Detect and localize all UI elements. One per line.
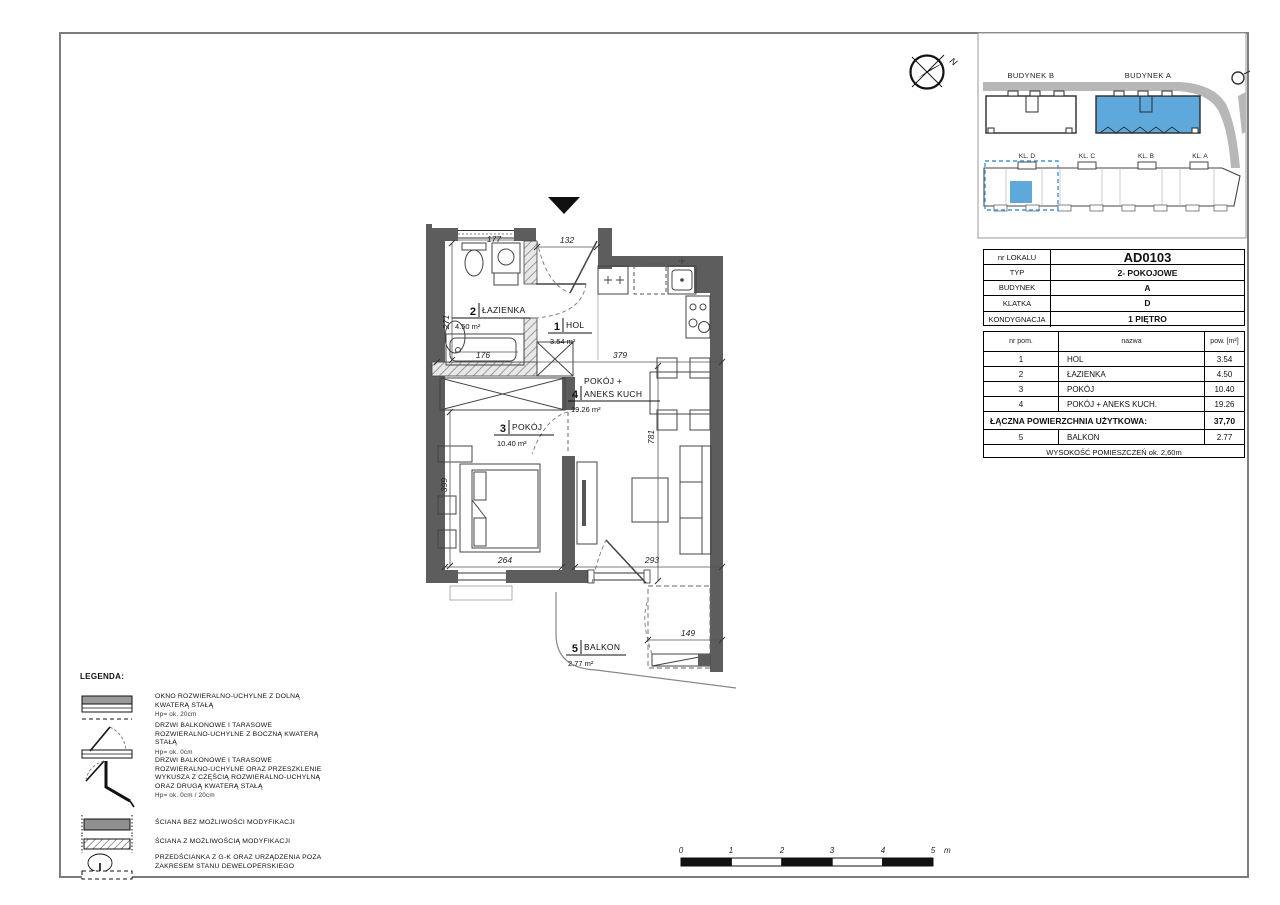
legend-line: ROZWIERALNO-UCHYLNE Z BOCZNĄ KWATERĄ: [155, 731, 319, 740]
bedroom-door: [532, 412, 568, 454]
legend-note: Hp= ok. 0cm / 20cm: [155, 792, 321, 801]
unit-building: A: [1051, 281, 1244, 295]
room-area: 19.26 m²: [571, 405, 601, 414]
unit-staircase: D: [1051, 296, 1244, 310]
table-row: TYP 2- POKOJOWE: [984, 265, 1244, 280]
scale-tick-5: 5: [931, 846, 936, 855]
scale-bar: 0 1 2 3 4 5 m: [679, 846, 951, 866]
room-area: 10.40 m²: [497, 439, 527, 448]
exterior-walls: [426, 224, 723, 672]
floor-plan-drawing: 132 177 271 176 379 781 399 264 293 149 …: [426, 197, 736, 688]
compass-north-label: N: [948, 56, 960, 68]
table-footer-row: WYSOKOŚĆ POMIESZCZEŃ ok. 2,60m: [984, 445, 1244, 459]
room-area: 3.54: [1205, 352, 1244, 366]
room-label-bathroom: 2 ŁAZIENKA 4.50 m²: [452, 303, 530, 331]
room-number: 2: [470, 306, 476, 318]
room-area: 2.77: [1205, 430, 1244, 444]
legend-line: ORAZ DRUGĄ KWATERĄ STAŁĄ: [155, 783, 321, 792]
room-name: POKÓJ: [1059, 382, 1205, 396]
building-a-highlighted: [1096, 91, 1200, 133]
table-row: 2 ŁAZIENKA 4.50: [984, 367, 1244, 382]
table-header-row: nr pom. nazwa pow. [m²]: [984, 332, 1244, 352]
legend-line: WYKUSZA Z CZĘŚCIĄ ROZWIERALNO-UCHYLNĄ: [155, 774, 321, 783]
stair-label-kl-b: KL. B: [1138, 153, 1154, 160]
room-area: 3.54 m²: [550, 337, 576, 346]
room-number: 3: [500, 423, 506, 435]
room-name: HOL: [566, 320, 584, 330]
site-plan: BUDYNEK B BUDYNEK A KL. D KL. C KL. B KL…: [978, 33, 1250, 238]
interior-walls: [432, 241, 575, 582]
dim-bath-depth: 271: [441, 315, 451, 330]
room-label-bedroom: 3 POKÓJ 10.40 m²: [494, 420, 554, 448]
total-label: ŁĄCZNA POWIERZCHNIA UŻYTKOWA:: [984, 412, 1205, 429]
room-nr: 4: [984, 397, 1059, 411]
scale-tick-1: 1: [729, 846, 733, 855]
balcony-row: 5 BALKON 2.77: [984, 430, 1244, 445]
room-nr: 3: [984, 382, 1059, 396]
room-name: HOL: [1059, 352, 1205, 366]
balcony-door: [592, 540, 646, 583]
room-area: 19.26: [1205, 397, 1244, 411]
scale-tick-3: 3: [830, 846, 835, 855]
room-name: POKÓJ: [512, 422, 542, 432]
unit-number: AD0103: [1051, 250, 1244, 264]
scale-unit: m: [944, 846, 951, 855]
table-row: BUDYNEK A: [984, 281, 1244, 296]
room-number: 1: [554, 321, 560, 333]
table-row: 1 HOL 3.54: [984, 352, 1244, 367]
room-name-line1: POKÓJ +: [584, 376, 622, 386]
room-nr: 1: [984, 352, 1059, 366]
floor-plan-sheet: 132 177 271 176 379 781 399 264 293 149 …: [0, 0, 1280, 905]
room-name: POKÓJ + ANEKS KUCH.: [1059, 397, 1205, 411]
bed: [460, 464, 540, 552]
legend-line: ZAKRESEM STANU DEWELOPERSKIEGO: [155, 863, 321, 872]
table-row: 3 POKÓJ 10.40: [984, 382, 1244, 397]
info-label: BUDYNEK: [984, 281, 1051, 295]
toilet: [462, 243, 486, 276]
room-number: 5: [572, 643, 578, 655]
stair-label-kl-c: KL. C: [1079, 153, 1096, 160]
building-a-label: BUDYNEK A: [1125, 71, 1172, 80]
tv-unit: [577, 462, 597, 544]
dim-living-depth: 781: [646, 430, 656, 444]
dim-bath-width: 177: [487, 234, 501, 244]
info-label: KONDYGNACJA: [984, 312, 1051, 327]
room-label-living: POKÓJ + 4 ANEKS KUCH 19.26 m²: [568, 376, 660, 414]
legend-line: DRZWI BALKONOWE I TARASOWE: [155, 722, 319, 731]
table-row: KONDYGNACJA 1 PIĘTRO: [984, 312, 1244, 327]
header-name: nazwa: [1059, 332, 1205, 351]
room-nr: 2: [984, 367, 1059, 381]
room-area: 4.50: [1205, 367, 1244, 381]
kitchen-appliances: [598, 258, 710, 360]
legend-line: PRZEDŚCIANKA Z G-K ORAZ URZĄDZENIA POZA: [155, 854, 321, 863]
room-name: BALKON: [1059, 430, 1205, 444]
corner-glazing-symbol-icon: [80, 757, 138, 811]
wardrobe: [440, 378, 565, 410]
legend-line: STAŁĄ: [155, 739, 319, 748]
north-compass-icon: N: [911, 55, 960, 89]
dim-bedroom-depth: 399: [439, 478, 449, 492]
dim-bathtub: 176: [476, 350, 490, 360]
bathroom-door: [536, 284, 586, 318]
table-row: 4 POKÓJ + ANEKS KUCH. 19.26: [984, 397, 1244, 412]
legend-line: KWATERĄ STAŁĄ: [155, 702, 300, 711]
room-area: 10.40: [1205, 382, 1244, 396]
room-label-balcony: 5 BALKON 2.77 m²: [566, 640, 626, 668]
header-area: pow. [m²]: [1205, 332, 1244, 351]
window-symbol-icon: [80, 693, 138, 725]
legend: LEGENDA: OKNO ROZWIERALNO-UCHYLNE Z DOLN…: [80, 672, 330, 880]
info-label: nr LOKALU: [984, 250, 1051, 264]
room-name-line2: ANEKS KUCH: [584, 389, 642, 399]
building-b-outline: [986, 91, 1076, 133]
room-nr: 5: [984, 430, 1059, 444]
washbasin: [492, 243, 520, 285]
legend-title: LEGENDA:: [80, 672, 330, 681]
legend-line: ŚCIANA BEZ MOŻLIWOŚCI MODYFIKACJI: [155, 819, 295, 828]
room-name: BALKON: [584, 642, 620, 652]
dim-living-bottom: 293: [644, 555, 659, 565]
room-area: 4.50 m²: [455, 322, 481, 331]
stair-label-kl-a: KL. A: [1192, 153, 1208, 160]
floor-strip: [984, 161, 1240, 211]
legend-line: ŚCIANA Z MOŻLIWOŚCIĄ MODYFIKACJI: [155, 838, 290, 847]
unit-floor: 1 PIĘTRO: [1051, 312, 1244, 327]
ceiling-height-note: WYSOKOŚĆ POMIESZCZEŃ ok. 2,60m: [984, 445, 1244, 459]
total-value: 37,70: [1205, 412, 1244, 429]
table-row: KLATKA D: [984, 296, 1244, 311]
partition-fixture-symbol-icon: [80, 851, 138, 881]
scale-tick-4: 4: [881, 846, 886, 855]
table-row: nr LOKALU AD0103: [984, 250, 1244, 265]
entrance-door: [537, 241, 597, 293]
legend-note: Hp= ok. 20cm: [155, 711, 300, 720]
legend-line: ROZWIERALNO-UCHYLNE ORAZ PRZESZKLENIE: [155, 766, 321, 775]
windows: [450, 231, 650, 601]
stair-label-kl-d: KL. D: [1019, 153, 1036, 160]
legend-line: DRZWI BALKONOWE I TARASOWE: [155, 757, 321, 766]
entrance-arrow-icon: [548, 197, 580, 214]
rooms-area-table: nr pom. nazwa pow. [m²] 1 HOL 3.54 2 ŁAZ…: [983, 331, 1245, 458]
total-area-row: ŁĄCZNA POWIERZCHNIA UŻYTKOWA: 37,70: [984, 412, 1244, 430]
dim-living-width: 379: [613, 350, 627, 360]
scale-tick-0: 0: [679, 846, 684, 855]
coffee-table: [632, 478, 668, 522]
dim-bedroom-width: 264: [497, 555, 512, 565]
info-label: TYP: [984, 265, 1051, 279]
balcony-outline: [556, 586, 736, 688]
header-nr: nr pom.: [984, 332, 1059, 351]
selected-unit-highlight: [1010, 181, 1032, 203]
dining-set: [650, 358, 710, 430]
sofa: [680, 446, 711, 554]
unit-info-table: nr LOKALU AD0103 TYP 2- POKOJOWE BUDYNEK…: [983, 249, 1245, 326]
room-number: 4: [572, 389, 579, 401]
shaft-box: [537, 342, 573, 376]
room-label-hol: 1 HOL 3.54 m²: [548, 318, 592, 346]
unit-type: 2- POKOJOWE: [1051, 265, 1244, 279]
legend-line: OKNO ROZWIERALNO-UCHYLNE Z DOLNĄ: [155, 693, 300, 702]
info-label: KLATKA: [984, 296, 1051, 310]
building-b-label: BUDYNEK B: [1008, 71, 1055, 80]
dim-balcony-width: 149: [681, 628, 695, 638]
scale-tick-2: 2: [779, 846, 785, 855]
room-name: ŁAZIENKA: [1059, 367, 1205, 381]
room-name: ŁAZIENKA: [482, 305, 526, 315]
room-area: 2.77 m²: [568, 659, 594, 668]
dim-entry-door: 132: [560, 235, 574, 245]
